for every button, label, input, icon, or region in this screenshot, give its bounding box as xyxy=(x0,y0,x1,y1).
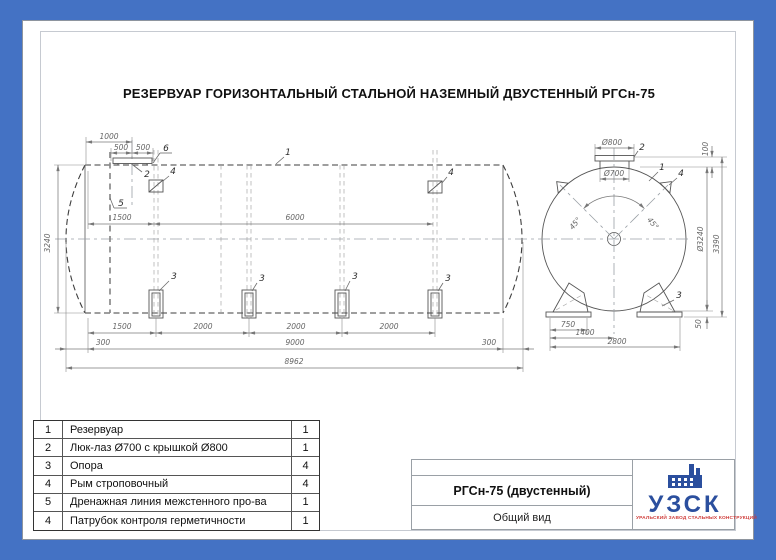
parts-row-qty: 1 xyxy=(292,512,319,530)
dim-dia700: Ø700 xyxy=(603,169,624,178)
callout-end-shell: 1 xyxy=(659,163,665,173)
callout-shell: 1 xyxy=(285,148,291,158)
callout-end-support: 3 xyxy=(676,291,682,301)
dim-dia3240: Ø3240 xyxy=(696,226,705,252)
title-block: РГСн-75 (двустенный) Общий вид УЗСК УРАЛ… xyxy=(411,459,735,530)
parts-row-qty: 1 xyxy=(292,494,319,512)
callout-support-c: 3 xyxy=(352,272,358,282)
dim-3240: 3240 xyxy=(43,233,52,252)
view-name: Общий вид xyxy=(412,506,632,530)
position-axes xyxy=(154,150,437,318)
parts-row-pos: 1 xyxy=(34,421,63,439)
callout-end-lug: 4 xyxy=(678,169,684,179)
dim-300-left: 300 xyxy=(96,338,111,347)
parts-row-qty: 4 xyxy=(292,457,319,475)
dim-45-right: 45° xyxy=(645,215,661,231)
parts-row-name: Рым строповочный xyxy=(63,476,292,494)
parts-row-pos: 4 xyxy=(34,476,63,494)
dim-1500-mid: 1500 xyxy=(112,213,131,222)
model-designation: РГСн-75 (двустенный) xyxy=(412,476,632,506)
callout-manhole: 2 xyxy=(144,170,150,180)
parts-row-name: Резервуар xyxy=(63,421,292,439)
side-view: 1000 500 500 1500 6000 3240 xyxy=(43,132,535,372)
side-callouts: 1 6 2 4 4 5 3 3 3 3 xyxy=(110,144,454,291)
callout-lug-b: 4 xyxy=(448,168,454,178)
dim-500-left: 500 xyxy=(114,143,129,152)
parts-row-name: Патрубок контроля герметичности xyxy=(63,512,292,530)
dim-2800: 2800 xyxy=(607,337,626,346)
dim-100: 100 xyxy=(701,142,710,157)
side-top-dimensions: 1000 500 500 xyxy=(86,132,153,164)
dim-2000-a: 2000 xyxy=(193,322,212,331)
uzsk-logo: УЗСК УРАЛЬСКИЙ ЗАВОД СТАЛЬНЫХ КОНСТРУКЦИ… xyxy=(636,464,734,522)
lifting-lug-symbol xyxy=(149,180,442,193)
parts-table: 1 Резервуар 1 2 Люк-лаз Ø700 с крышкой Ø… xyxy=(33,420,320,531)
parts-row-name: Дренажная линия межстенного про-ва xyxy=(63,494,292,512)
callout-control-nozzle: 6 xyxy=(163,144,169,154)
dim-1500-bottom: 1500 xyxy=(112,322,131,331)
dim-45-left: 45° xyxy=(567,215,583,231)
parts-row-qty: 1 xyxy=(292,421,319,439)
dim-1000: 1000 xyxy=(99,132,118,141)
dim-2000-c: 2000 xyxy=(379,322,398,331)
manhole-dimensions: Ø800 Ø700 xyxy=(595,138,634,182)
parts-row-pos: 2 xyxy=(34,439,63,457)
dim-300-right: 300 xyxy=(482,338,497,347)
dim-9000: 9000 xyxy=(285,338,304,347)
radius-45-left xyxy=(560,185,614,239)
dim-dia800: Ø800 xyxy=(601,138,622,147)
dim-50: 50 xyxy=(694,319,703,329)
parts-row-qty: 1 xyxy=(292,439,319,457)
dim-2000-b: 2000 xyxy=(286,322,305,331)
callout-end-manhole: 2 xyxy=(639,143,645,153)
parts-row-name: Опора xyxy=(63,457,292,475)
title-block-text-area: РГСн-75 (двустенный) Общий вид xyxy=(412,460,633,529)
side-mid-dimensions: 1500 6000 xyxy=(88,171,433,229)
parts-row-pos: 3 xyxy=(34,457,63,475)
logo-name: УЗСК xyxy=(636,494,734,516)
callout-support-d: 3 xyxy=(445,274,451,284)
dim-6000: 6000 xyxy=(285,213,304,222)
parts-row-pos: 5 xyxy=(34,494,63,512)
blue-frame: РЕЗЕРВУАР ГОРИЗОНТАЛЬНЫЙ СТАЛЬНОЙ НАЗЕМН… xyxy=(0,0,776,560)
support-symbols xyxy=(149,290,442,318)
side-bottom-dimensions: 1500 2000 2000 2000 300 9000 300 8962 xyxy=(55,242,534,372)
dim-8962: 8962 xyxy=(284,357,303,366)
callout-lug-a: 4 xyxy=(170,167,176,177)
callout-support-a: 3 xyxy=(171,272,177,282)
dim-1400: 1400 xyxy=(575,328,594,337)
logo-tagline: УРАЛЬСКИЙ ЗАВОД СТАЛЬНЫХ КОНСТРУКЦИЙ xyxy=(636,516,734,522)
title-block-top-strip xyxy=(412,460,632,476)
dim-3390: 3390 xyxy=(712,234,721,253)
radius-45-right xyxy=(614,185,668,239)
parts-row-name: Люк-лаз Ø700 с крышкой Ø800 xyxy=(63,439,292,457)
dim-750: 750 xyxy=(561,320,576,329)
factory-icon xyxy=(664,464,706,489)
end-view: 45° 45° Ø800 Ø700 xyxy=(538,138,727,351)
parts-row-pos: 4 xyxy=(34,512,63,530)
parts-row-qty: 4 xyxy=(292,476,319,494)
callout-support-b: 3 xyxy=(259,274,265,284)
end-bottom-dimensions: 750 1400 2800 xyxy=(550,318,680,351)
dim-500-right: 500 xyxy=(136,143,151,152)
callout-drain: 5 xyxy=(118,199,124,209)
manhole-symbol xyxy=(113,158,152,165)
